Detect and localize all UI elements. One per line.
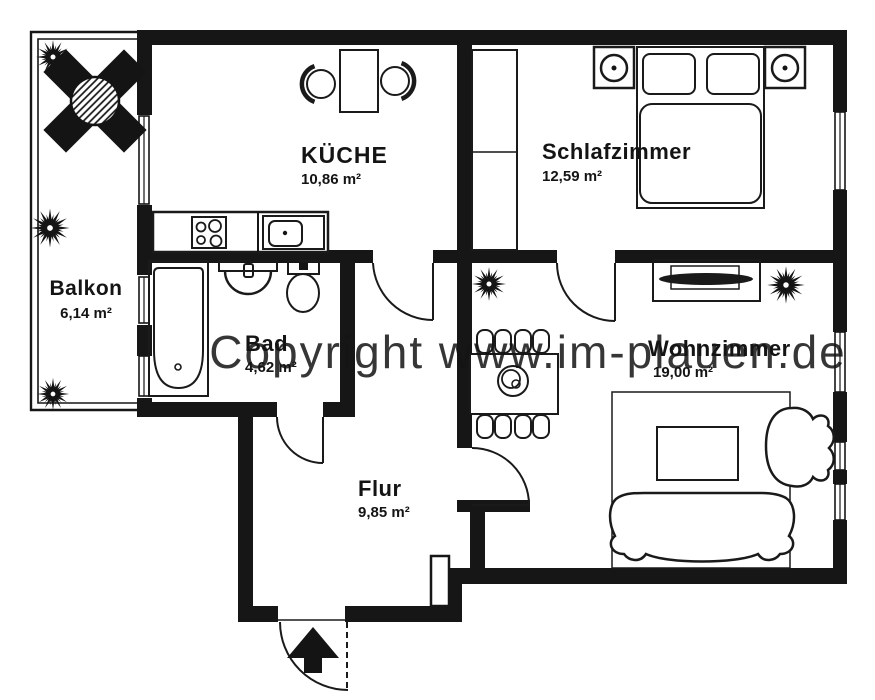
plant-icon bbox=[767, 266, 804, 303]
kitchen-table bbox=[340, 50, 378, 112]
nightstand bbox=[594, 47, 634, 88]
coffee-table bbox=[657, 427, 738, 480]
washbasin bbox=[219, 261, 277, 294]
window-bath-1 bbox=[139, 277, 149, 323]
room-label-balkon: Balkon 6,14 m² bbox=[49, 277, 122, 322]
room-label-flur: Flur 9,85 m² bbox=[358, 476, 410, 521]
room-area: 12,59 m² bbox=[542, 168, 602, 185]
wall-hall-left bbox=[238, 402, 253, 622]
window-bath-2 bbox=[139, 356, 149, 396]
wardrobe bbox=[472, 50, 517, 250]
wall-right-seg bbox=[833, 30, 847, 112]
balcony-table bbox=[43, 49, 146, 152]
floorplan: Balkon 6,14 m² KÜCHE 10,86 m² Schlafzimm… bbox=[0, 0, 875, 700]
room-name: Flur bbox=[358, 476, 402, 501]
kitchen-chair bbox=[381, 63, 414, 99]
room-name: Schlafzimmer bbox=[542, 139, 691, 164]
plant-icon bbox=[472, 267, 506, 301]
wall-top bbox=[137, 30, 847, 45]
bed bbox=[637, 47, 764, 208]
wall-right-seg bbox=[833, 392, 847, 442]
room-area: 9,85 m² bbox=[358, 504, 410, 521]
wall-right-seg bbox=[833, 470, 847, 484]
door-living bbox=[472, 448, 529, 505]
window-living-right-2 bbox=[835, 442, 845, 470]
wall-kitchen-bedroom bbox=[457, 45, 472, 263]
wall-bedroom-living bbox=[615, 250, 847, 263]
room-name: KÜCHE bbox=[301, 142, 388, 168]
window-living-right-3 bbox=[835, 484, 845, 520]
toilet bbox=[287, 261, 319, 312]
door-bath bbox=[277, 417, 323, 463]
plant-icon bbox=[30, 208, 69, 247]
kitchen-chair bbox=[302, 66, 335, 102]
window-bedroom-right bbox=[835, 112, 845, 190]
room-area: 6,14 m² bbox=[60, 305, 112, 322]
wall-living-bottom bbox=[448, 568, 847, 584]
wall-pillar bbox=[431, 556, 449, 606]
dining-chair bbox=[477, 415, 511, 438]
nightstand bbox=[765, 47, 805, 88]
door-kitchen bbox=[373, 263, 433, 320]
wall-hall-bottom bbox=[345, 606, 448, 622]
room-area: 10,86 m² bbox=[301, 171, 361, 188]
wall-bedroom-living bbox=[472, 250, 557, 263]
kitchen-table-set bbox=[302, 50, 414, 112]
wall-hall-living bbox=[470, 512, 485, 570]
entrance-arrow-icon bbox=[287, 627, 339, 673]
kitchen-counter bbox=[153, 212, 328, 252]
sofa bbox=[610, 493, 794, 562]
dining-chair bbox=[515, 415, 549, 438]
plant-icon bbox=[37, 378, 69, 410]
room-label-kueche: KÜCHE 10,86 m² bbox=[301, 142, 388, 188]
door-bedroom bbox=[557, 263, 615, 321]
floorplan-page: Balkon 6,14 m² KÜCHE 10,86 m² Schlafzimm… bbox=[0, 0, 875, 700]
armchair bbox=[766, 408, 834, 487]
wall-bath-bottom bbox=[137, 402, 277, 417]
room-name: Balkon bbox=[49, 277, 122, 300]
watermark-text: Copyright www.im-plauen.de bbox=[209, 326, 847, 378]
sideboard bbox=[653, 260, 760, 301]
bathtub bbox=[149, 261, 208, 396]
